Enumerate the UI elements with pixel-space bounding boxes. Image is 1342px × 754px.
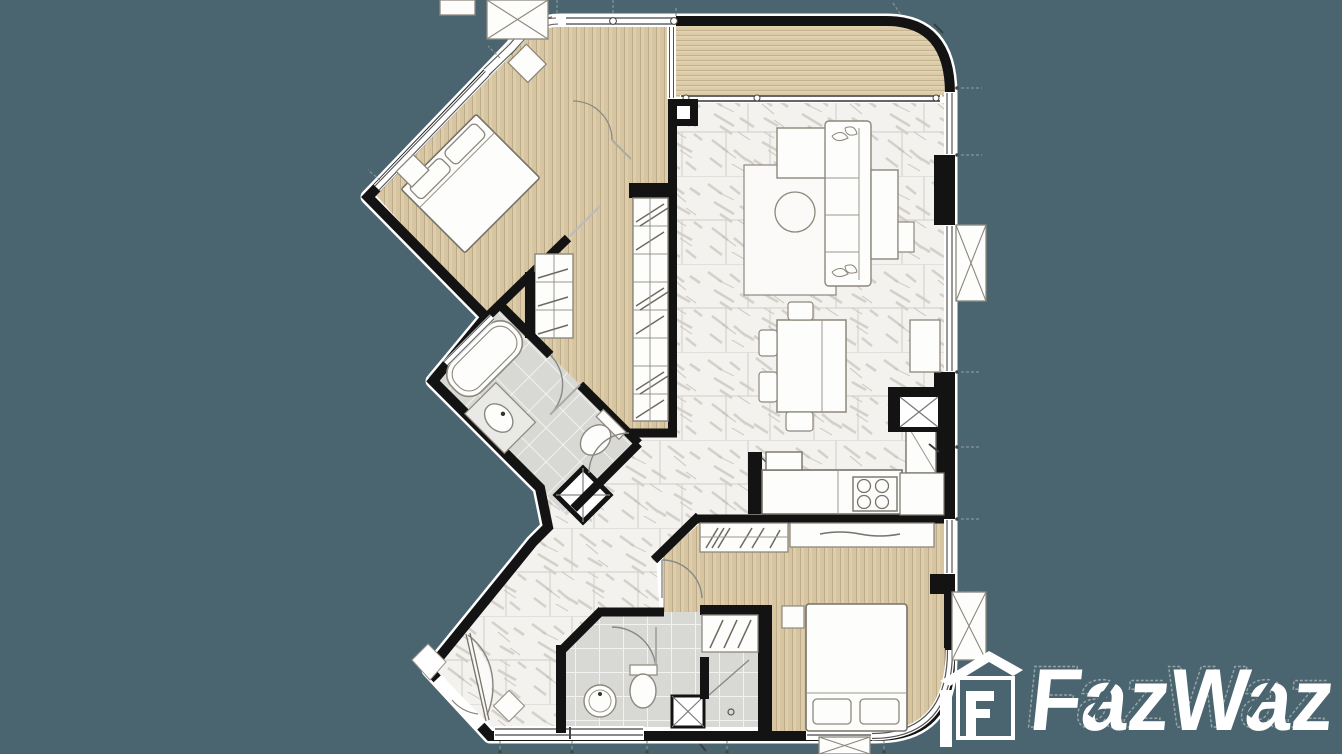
svg-text:FazWaz: FazWaz [1026, 650, 1339, 749]
